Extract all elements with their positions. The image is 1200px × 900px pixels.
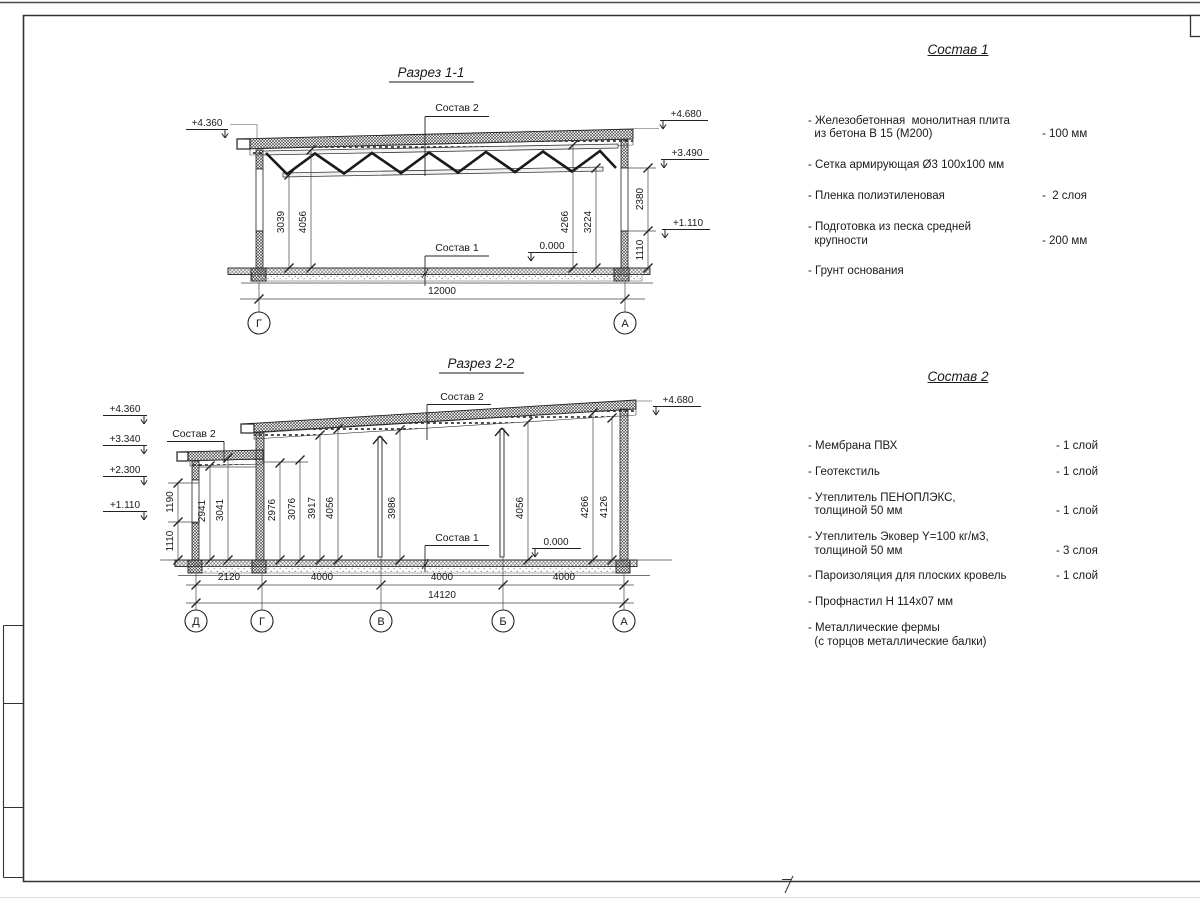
elevation-right-low: +1.110 [662, 218, 710, 238]
wall-g [256, 433, 264, 560]
dim-2976: 2976 [267, 498, 278, 521]
svg-text:+4.360: +4.360 [192, 118, 223, 129]
elevation-l4: +1.110 [103, 500, 147, 520]
sheet-break-mark [782, 876, 793, 893]
material-item: - Сетка армирующая Ø3 100х100 мм [808, 159, 1108, 172]
elevation-l2: +3.340 [103, 434, 147, 454]
material-list-1-title: Состав 1 [808, 42, 1108, 57]
zero-level-mark-2: 0.000 [532, 537, 581, 557]
dim-4056-r: 4056 [515, 496, 526, 519]
floor-slab [228, 268, 653, 283]
svg-text:+4.680: +4.680 [663, 395, 694, 406]
material-item: - Геотекстиль - 1 слой [808, 466, 1108, 479]
axis-bubbles-2-2: Д Г В Б А [185, 610, 635, 632]
sostav1-label: Состав 1 [435, 242, 479, 254]
axis-d: Д [192, 616, 200, 628]
dim-4056-l: 4056 [325, 496, 336, 519]
svg-text:0.000: 0.000 [543, 537, 568, 548]
dim-4266: 4266 [560, 210, 571, 233]
svg-text:+2.300: +2.300 [110, 465, 141, 476]
foundation-d [188, 560, 202, 573]
drawing-sheet: Разрез 1-1 [0, 0, 1200, 900]
material-item: - Утеплитель ПЕНОПЛЭКС, толщиной 50 мм -… [808, 492, 1108, 519]
svg-text:Состав 2: Состав 2 [172, 428, 216, 440]
elevation-right-mid: +3.490 [661, 148, 709, 168]
wall-right [621, 140, 628, 268]
dim-4056: 4056 [298, 210, 309, 233]
material-item: - Пароизоляция для плоских кровель - 1 с… [808, 570, 1108, 583]
material-item: - Металлические фермы (с торцов металлич… [808, 622, 1108, 649]
column-v [373, 436, 387, 557]
dim-1110-2: 1110 [165, 530, 176, 551]
axis-a: А [621, 318, 629, 330]
dim-1190: 1190 [165, 491, 176, 513]
dim-2941: 2941 [197, 499, 208, 522]
material-value: - 100 мм [1042, 128, 1108, 141]
dim-14120: 14120 [428, 590, 456, 601]
foundation-right [614, 268, 629, 281]
material-list-1: Состав 1 - Железобетонная монолитная пли… [808, 42, 1108, 296]
dim-3076: 3076 [287, 497, 298, 520]
elevation-left: +4.360 [186, 118, 257, 139]
svg-text:Состав 1: Состав 1 [435, 532, 479, 544]
section-2-2: Разрез 2-2 [103, 356, 701, 632]
foundation-g [252, 560, 266, 573]
material-value: - 3 слоя [1056, 545, 1108, 558]
section-1-1-title: Разрез 1-1 [398, 65, 465, 80]
svg-text:+4.360: +4.360 [110, 404, 141, 415]
frame-corner-cell [1191, 16, 1200, 37]
foundation-left [251, 268, 266, 281]
material-name: - Подготовка из песка средней крупности [808, 221, 1042, 248]
elevation-right-2: +4.680 [637, 395, 701, 415]
axis-g: Г [256, 318, 262, 330]
section-2-2-title: Разрез 2-2 [448, 356, 515, 371]
material-value: - 1 слой [1056, 440, 1108, 453]
material-list-2-title: Состав 2 [808, 369, 1108, 384]
material-name: - Утеплитель ПЕНОПЛЭКС, толщиной 50 мм [808, 492, 1056, 519]
section-1-1: Разрез 1-1 [186, 65, 710, 334]
material-item: - Утеплитель Эковер Y=100 кг/м3, толщино… [808, 531, 1108, 558]
material-item: - Железобетонная монолитная плита из бет… [808, 115, 1108, 142]
main-roof-end-cap [241, 424, 254, 433]
sostav2-label: Состав 2 [435, 102, 479, 114]
material-item: - Мембрана ПВХ - 1 слой [808, 440, 1108, 453]
svg-text:+3.490: +3.490 [672, 148, 703, 159]
material-name: - Грунт основания [808, 265, 1042, 278]
elevation-l3: +2.300 [103, 465, 147, 485]
material-name: - Железобетонная монолитная плита из бет… [808, 115, 1042, 142]
material-name: - Мембрана ПВХ [808, 440, 1056, 453]
material-name: - Сетка армирующая Ø3 100х100 мм [808, 159, 1042, 172]
roof-end-cap [237, 139, 250, 149]
axis-a2: А [620, 616, 628, 628]
dim-4000-3: 4000 [553, 572, 576, 583]
material-name: - Утеплитель Эковер Y=100 кг/м3, толщино… [808, 531, 1056, 558]
material-name: - Профнастил Н 114х07 мм [808, 596, 1056, 609]
svg-text:+4.680: +4.680 [671, 109, 702, 120]
dim-3039: 3039 [276, 210, 287, 233]
svg-text:Состав 2: Состав 2 [440, 391, 484, 403]
svg-text:+3.340: +3.340 [110, 434, 141, 445]
dim-3986: 3986 [387, 496, 398, 519]
column-b [495, 428, 509, 557]
dim-1110: 1110 [635, 239, 646, 260]
material-name: - Пароизоляция для плоских кровель [808, 570, 1056, 583]
dim-3224: 3224 [583, 210, 594, 233]
frame-margin-cells [4, 626, 24, 878]
dim-3917: 3917 [307, 496, 318, 519]
zero-level-text: 0.000 [539, 241, 564, 252]
material-item: - Грунт основания [808, 265, 1108, 278]
dim-4126: 4126 [599, 495, 610, 518]
material-value: - 1 слой [1056, 505, 1108, 518]
dim-4000-2: 4000 [431, 572, 454, 583]
material-item: - Подготовка из песка средней крупности … [808, 221, 1108, 248]
dim-2380: 2380 [635, 187, 646, 210]
wall-left [256, 150, 263, 268]
axis-v: В [377, 616, 384, 628]
material-value: - 2 слоя [1042, 190, 1108, 203]
svg-text:+1.110: +1.110 [110, 500, 141, 511]
dim-2120: 2120 [218, 572, 241, 583]
dim-4000-1: 4000 [311, 572, 334, 583]
axis-g2: Г [259, 616, 265, 628]
wall-a [620, 409, 628, 560]
axis-b: Б [499, 616, 506, 628]
zero-level-mark: 0.000 [528, 241, 577, 261]
small-roof-end-cap [177, 452, 188, 461]
svg-text:+1.110: +1.110 [673, 218, 704, 229]
material-value: - 1 слой [1056, 466, 1108, 479]
material-name: - Металлические фермы (с торцов металлич… [808, 622, 1056, 649]
material-name: - Пленка полиэтиленовая [808, 190, 1042, 203]
material-item: - Пленка полиэтиленовая - 2 слоя [808, 190, 1108, 203]
dim-12000: 12000 [428, 286, 456, 297]
material-item: - Профнастил Н 114х07 мм [808, 596, 1108, 609]
material-list-2: Состав 2 - Мембрана ПВХ - 1 слой - Геоте… [808, 369, 1108, 662]
dim-3041: 3041 [215, 498, 226, 521]
material-value: - 1 слой [1056, 570, 1108, 583]
material-name: - Геотекстиль [808, 466, 1056, 479]
elevation-l1: +4.360 [103, 404, 147, 424]
axis-bubbles-1-1: Г А [248, 312, 636, 334]
material-value: - 200 мм [1042, 235, 1108, 248]
foundation-a [616, 560, 630, 573]
dim-4266-2: 4266 [580, 495, 591, 518]
elevation-right-top: +4.680 [633, 109, 708, 129]
